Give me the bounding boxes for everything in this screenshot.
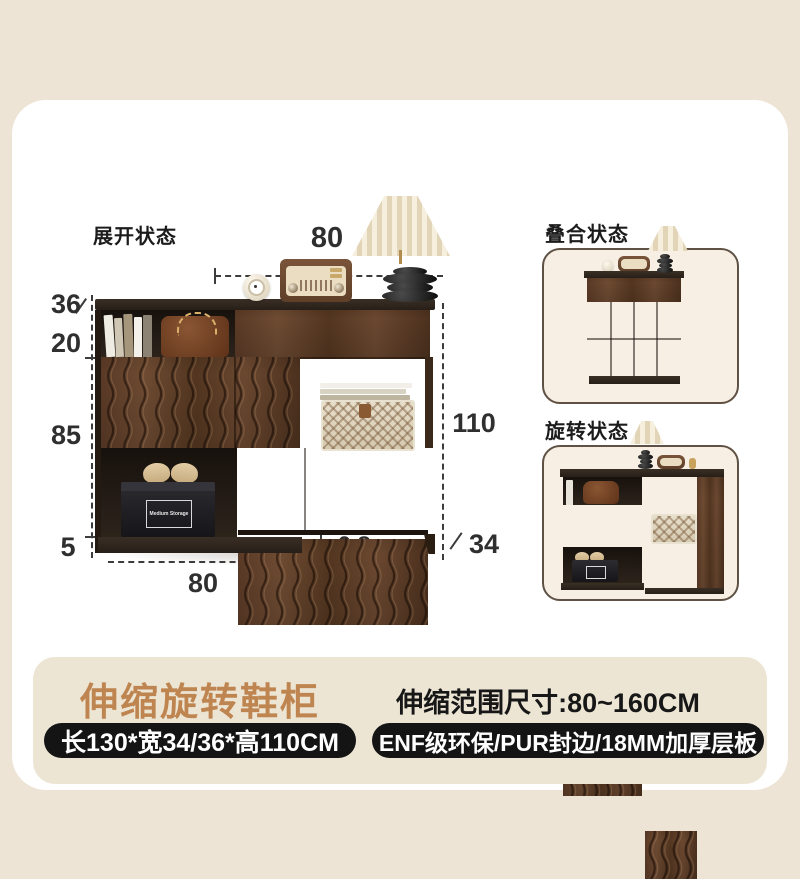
radio-knob bbox=[288, 283, 298, 293]
handbag bbox=[583, 481, 619, 504]
lamp-spiral-base bbox=[380, 258, 440, 302]
handbag-chain bbox=[177, 312, 217, 336]
rotated-counter-top bbox=[560, 469, 724, 477]
radio-knob bbox=[334, 283, 344, 293]
sliding-part-bottom-edge bbox=[238, 530, 428, 535]
stacked-state-label: 叠合状态 bbox=[545, 218, 629, 247]
expanded-state-label: 展开状态 bbox=[93, 220, 177, 249]
radio-button bbox=[330, 274, 342, 278]
rotated-wavy-door-right bbox=[645, 831, 697, 879]
dim-label-5: 5 bbox=[50, 532, 86, 563]
rotated-base-right bbox=[645, 588, 724, 594]
rotated-open-shelf-bottom bbox=[563, 547, 642, 583]
storage-box-lid bbox=[121, 482, 215, 491]
stacked-cabinet-seam-v bbox=[656, 302, 658, 376]
dim-line-left-height bbox=[91, 295, 93, 558]
shoe bbox=[142, 462, 171, 485]
table-clock bbox=[243, 274, 270, 301]
radio-face bbox=[286, 266, 346, 296]
dim-label-20: 20 bbox=[46, 328, 86, 359]
rotated-base-left bbox=[561, 583, 644, 590]
wavy-doors-middle-left bbox=[101, 357, 300, 448]
mini-radio-face bbox=[660, 458, 682, 466]
clock-center bbox=[254, 285, 257, 288]
shoe bbox=[170, 462, 199, 484]
product-detail-image: 展开状态 80 36 20 85 5 110 34 6.8 80 50 bbox=[0, 0, 800, 800]
book bbox=[566, 480, 573, 505]
extension-range-text: 伸缩范围尺寸:80~160CM bbox=[363, 681, 733, 720]
rotated-open-shelf-top bbox=[563, 477, 642, 505]
open-shelf-top bbox=[101, 310, 235, 357]
storage-box-label-small bbox=[586, 566, 606, 579]
dim-label-36: 36 bbox=[46, 289, 86, 320]
size-badge: 长130*宽34/36*高110CM bbox=[44, 723, 356, 758]
mini-radio bbox=[657, 455, 685, 469]
book-stack bbox=[320, 383, 412, 401]
dim-label-34: 34 bbox=[462, 529, 506, 560]
footer-card: 伸缩旋转鞋柜 伸缩范围尺寸:80~160CM 长130*宽34/36*高110C… bbox=[33, 657, 767, 784]
storage-box-label: Medium Storage bbox=[146, 500, 192, 528]
stacked-cabinet-upper bbox=[587, 278, 681, 302]
stacked-cabinet-seam-v bbox=[610, 302, 612, 376]
rattan-storage-box bbox=[321, 400, 415, 451]
rotated-right-panel bbox=[697, 477, 724, 593]
mini-radio-face bbox=[621, 259, 647, 269]
dim-label-top-80: 80 bbox=[305, 222, 349, 255]
door-seam bbox=[234, 357, 236, 448]
book bbox=[114, 318, 124, 357]
door-seam bbox=[304, 448, 306, 534]
dim-label-85: 85 bbox=[46, 420, 86, 451]
rotated-state-label: 旋转状态 bbox=[545, 415, 629, 444]
book bbox=[143, 315, 152, 357]
storage-box bbox=[572, 560, 618, 582]
top-drawer-front bbox=[235, 310, 430, 359]
dim-tick-top-left bbox=[214, 268, 216, 284]
dim-line-right-height bbox=[442, 303, 444, 560]
box-clasp bbox=[359, 404, 371, 418]
cabinet-base bbox=[98, 537, 302, 553]
cabinet-right-side-upper bbox=[425, 357, 433, 448]
mini-ornament bbox=[689, 458, 696, 469]
radio-grille bbox=[300, 280, 332, 291]
stacked-cabinet-seam-v bbox=[633, 302, 635, 376]
open-shelf-bottom: Medium Storage bbox=[101, 448, 237, 537]
stacked-cabinet-base bbox=[589, 376, 680, 384]
material-badge: ENF级环保/PUR封边/18MM加厚层板 bbox=[372, 723, 764, 758]
mini-lamp-base bbox=[637, 443, 654, 469]
dim-label-bottom-80: 80 bbox=[181, 568, 225, 599]
book bbox=[123, 314, 133, 357]
product-title: 伸缩旋转鞋柜 bbox=[75, 671, 325, 726]
dim-label-110: 110 bbox=[448, 408, 500, 439]
mini-radio bbox=[618, 256, 650, 272]
storage-box: Medium Storage bbox=[121, 482, 215, 537]
rattan-storage-box-small bbox=[651, 514, 697, 544]
book bbox=[134, 317, 142, 357]
mini-lamp-base bbox=[656, 250, 674, 273]
radio-button bbox=[330, 268, 342, 272]
vintage-radio bbox=[280, 259, 352, 302]
